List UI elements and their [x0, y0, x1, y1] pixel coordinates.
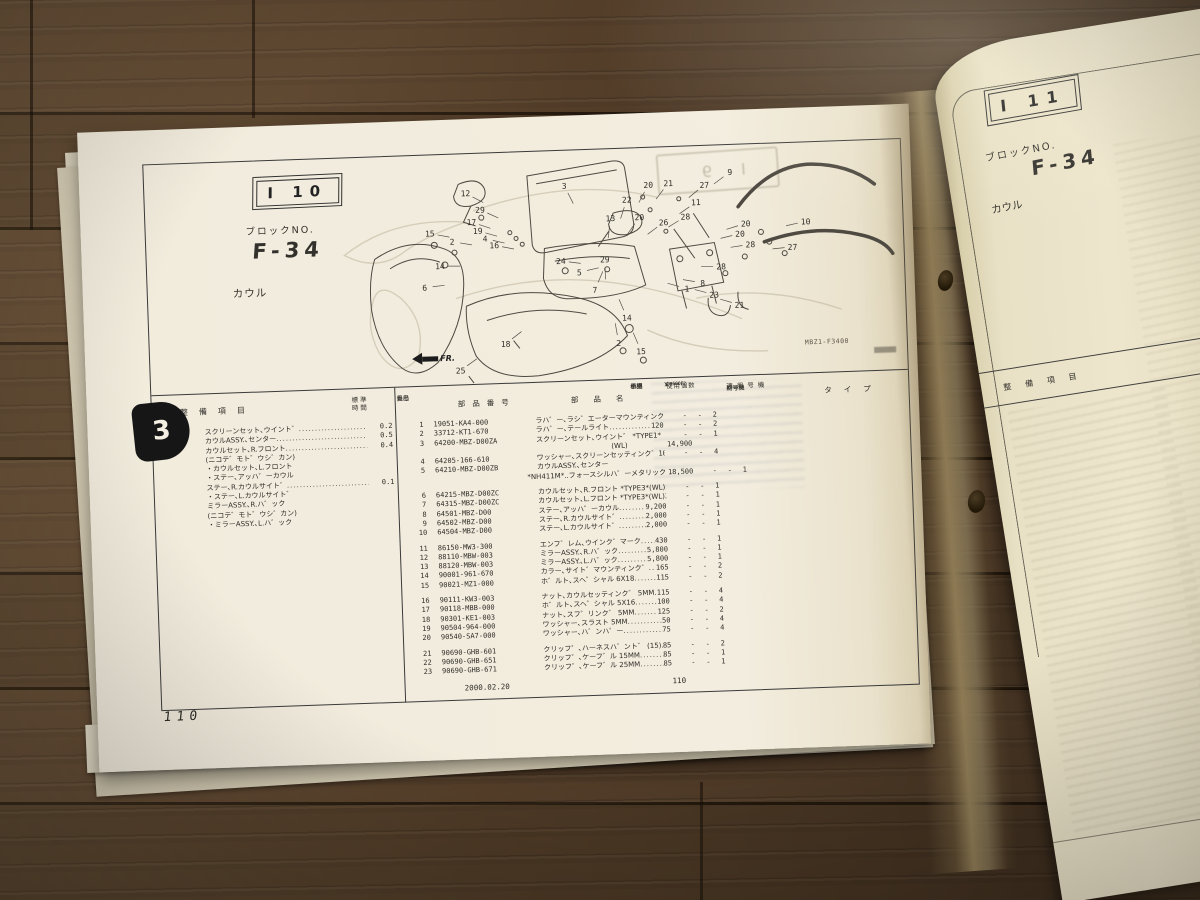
qty-cell: - [696, 519, 711, 529]
last-serial-header: 終号機 [726, 383, 744, 393]
retail-price: 23,400 [665, 493, 667, 502]
callout-number: 13 [605, 214, 615, 223]
qty-cell: 1 [711, 519, 726, 529]
type-header: タイプ [810, 382, 896, 396]
standard-time-value: 0.4 [367, 440, 393, 450]
callout-leader-line [512, 332, 522, 339]
qty-cell: - [693, 429, 708, 439]
callout-number: 27 [699, 181, 709, 190]
retail-price: 165 [656, 564, 669, 574]
callout-number: 2 [616, 339, 621, 348]
retail-price: 115 [656, 573, 669, 583]
qty-cell: 1 [710, 491, 725, 501]
callout-leader-line [487, 213, 498, 219]
callout-leader-line [720, 299, 732, 303]
standard-time-header: 標準 時間 [351, 396, 369, 413]
qty-cell: 4 [714, 614, 729, 624]
qty-cell: 1 [710, 481, 725, 491]
qty-cell: - [683, 572, 698, 582]
callout-leader-line [656, 189, 664, 199]
qty-cell: 2 [715, 639, 730, 649]
part-name: ステー､L.カウルサイト゛ [539, 522, 619, 534]
callout-number: 20 [643, 181, 653, 190]
ref-number-cell: 15 [401, 581, 429, 591]
retail-price: 2,000 [646, 521, 667, 531]
price-header-line3: 価格 [630, 383, 643, 390]
callout-number: 23 [709, 290, 719, 299]
part-name: クリッフ゜､ケーフ゛ル 25MM [544, 661, 641, 674]
callout-number: 28 [745, 240, 755, 249]
callout-number: 3 [562, 182, 567, 191]
callout-number: 10 [801, 217, 811, 226]
dotted-leader: ........................................… [641, 536, 656, 546]
quantity-used-header: 使用個数 CB600F CB600F2 X Y Y [666, 379, 724, 381]
retail-price-header: 希望 小売 価格 [630, 382, 662, 383]
wood-plank-seam [252, 0, 255, 118]
callout-number: 24 [556, 257, 566, 266]
qty-model-2: CB600F2 [666, 382, 686, 388]
retail-price: 18,500 [668, 467, 694, 477]
callout-number: 7 [592, 286, 597, 295]
wood-plank-seam [700, 782, 703, 900]
callout-leader-line [620, 207, 624, 218]
callout-leader-line [668, 221, 679, 227]
callout-number: 5 [577, 268, 582, 277]
qty-cell: - [722, 466, 737, 476]
callout-number: 20 [741, 219, 751, 228]
arrow-icon [412, 353, 422, 365]
callout-number: 2 [450, 238, 455, 247]
retail-price: 85 [663, 650, 672, 660]
callout-number: 21 [735, 301, 745, 310]
qty-cell: - [700, 649, 715, 659]
callout-number: 8 [700, 279, 705, 288]
parts-rows: 119051-KA4-000ラハ゛ー､ラシ゛エーターマウンティンク゛......… [395, 404, 918, 678]
callout-leader-line [786, 223, 798, 226]
callout-leader-line [473, 197, 484, 203]
fr-label: FR. [440, 353, 455, 363]
callout-leader-line [668, 283, 680, 287]
arrow-icon [422, 356, 438, 362]
qty-cell: - [685, 640, 700, 650]
qty-cell: - [682, 535, 697, 545]
callout-leader-line [714, 177, 724, 184]
photo-of-parts-catalog: I 10 ブロックNO. F-34 カウル I 9 [0, 0, 1200, 900]
callout-number: 27 [788, 243, 798, 252]
callout-number: 12 [460, 189, 470, 198]
qty-cell: 2 [713, 571, 728, 581]
standard-time-header-line2: 時間 [352, 404, 369, 413]
qty-cell: - [682, 544, 697, 554]
qty-cell: - [684, 615, 699, 625]
callout-number: 18 [501, 340, 511, 349]
callout-leader-line [448, 266, 460, 267]
qty-cell: 4 [715, 623, 730, 633]
qty-cell: 4 [708, 448, 723, 458]
qty-cell: 1 [711, 534, 726, 544]
front-direction-arrow: FR. [412, 352, 455, 365]
callout-number: 6 [422, 284, 427, 293]
callout-leader-line [502, 246, 514, 249]
dotted-leader: ........................................… [640, 660, 664, 670]
qty-cell: - [697, 553, 712, 563]
ref-number-cell [397, 477, 425, 487]
dotted-leader: ........................................… [634, 574, 656, 584]
issue-date: 2000.02.20 [465, 682, 510, 693]
qty-cell: - [697, 544, 712, 554]
part-name-header: 部品名 [543, 391, 667, 406]
callout-leader-line [438, 235, 450, 238]
callout-leader-line [731, 245, 743, 247]
qty-cell: - [699, 605, 714, 615]
qty-cell: - [678, 449, 693, 459]
callout-number: 9 [727, 168, 732, 177]
qty-cell: 1 [711, 509, 726, 519]
callout-leader-line [433, 285, 445, 286]
qty-cell: - [678, 430, 693, 440]
maintenance-items-header: 整備項目 [180, 405, 256, 419]
retail-price: 125 [657, 607, 670, 617]
part-name: ワッシャー､ハ゛ンハ゜ー [543, 627, 624, 639]
retail-price: 100 [658, 450, 665, 460]
parts-pane: 見出 番号 部品番号 部品名 希望 小売 価格 使用個数 [394, 370, 919, 703]
block-no-label: ブロックNO. [245, 221, 315, 237]
callout-number: 1 [684, 284, 689, 293]
callout-leader-line [619, 299, 624, 310]
ref-number-cell: 23 [404, 668, 432, 678]
section-tab-label: I 11 [999, 85, 1066, 115]
callout-number: 15 [636, 347, 646, 356]
ref-number-cell: 20 [403, 634, 431, 644]
part-name: ホ゛ルト､スヘ゜シャル 6X18 [541, 574, 635, 587]
callout-number: 25 [456, 366, 466, 375]
page-frame: I 10 ブロックNO. F-34 カウル I 9 [142, 138, 920, 711]
left-page: I 10 ブロックNO. F-34 カウル I 9 [77, 104, 931, 773]
retail-price: 23,400 [665, 483, 666, 492]
callout-number: 28 [680, 212, 690, 221]
qty-cell: 2 [712, 562, 727, 572]
maintenance-items-header: 整備項目 [1003, 369, 1092, 394]
callout-number: 22 [622, 195, 632, 204]
part-number-header: 部品番号 [435, 396, 539, 411]
callout-number: 14 [622, 313, 632, 322]
qty-cell: - [695, 501, 710, 511]
callout-leader-line [633, 333, 638, 344]
category-label: カウル [233, 285, 268, 301]
standard-time-value: 0.1 [368, 478, 394, 488]
qty-cell: - [700, 624, 715, 634]
dotted-leader: ........................................… [623, 626, 662, 637]
callout-leader-line [568, 193, 573, 204]
callout-leader-line [695, 289, 707, 293]
callout-leader-line [467, 359, 477, 366]
qty-cell: 2 [707, 410, 722, 420]
callout-number: 20 [735, 229, 745, 238]
wood-plank-seam [30, 0, 33, 230]
qty-mark-3: Y [664, 382, 668, 388]
retail-price: 120 [651, 422, 664, 432]
qty-cell: - [681, 510, 696, 520]
maintenance-rows: スクリーンセット､ウイント゛..........................… [153, 422, 396, 533]
ref-number-header: 見出 番号 [396, 395, 430, 396]
callout-number: 11 [691, 198, 701, 207]
callout-number: 4 [482, 234, 487, 243]
callout-leader-line [647, 227, 657, 234]
ref-number-cell: 10 [399, 529, 427, 539]
qty-cell: - [701, 658, 716, 668]
qty-cell: - [685, 625, 700, 635]
retail-price: 75 [662, 626, 671, 636]
qty-cell: - [693, 448, 708, 458]
qty-cell: - [684, 606, 699, 616]
callout-leader-line [569, 261, 581, 263]
ref-header-line2: 番号 [396, 395, 409, 403]
retail-price: 85 [663, 641, 672, 651]
qty-cell: 1 [716, 657, 731, 667]
callout-leader-line [587, 268, 599, 271]
callout-leader-line [615, 323, 617, 335]
callout-leader-line [683, 279, 695, 282]
retail-price: 100 [657, 598, 670, 608]
retail-price: 50 [662, 616, 671, 626]
qty-cell: 2 [714, 605, 729, 615]
callout-number: 29 [600, 255, 610, 264]
callout-leader-line [460, 243, 472, 246]
qty-cell: - [681, 520, 696, 530]
maintenance-pane: 整備項目 標準 時間 スクリーンセット､ウイント゛...............… [151, 388, 405, 711]
callout-leader-line [720, 236, 732, 239]
thumb-index-number: 3 [151, 415, 172, 447]
page-number: 110 [163, 709, 203, 725]
qty-cell: - [680, 492, 695, 502]
qty-cell: - [682, 563, 697, 573]
qty-cell: 1 [708, 429, 723, 439]
qty-cell: 1 [737, 465, 752, 475]
callout-number: 21 [663, 179, 673, 188]
callout-number: 14 [435, 262, 445, 271]
callout-number: 29 [475, 206, 485, 215]
qty-cell: - [695, 491, 710, 501]
callout-number: 19 [473, 227, 483, 236]
dotted-leader: ........................................… [619, 521, 647, 531]
qty-cell: - [693, 420, 708, 430]
qty-cell: - [680, 482, 695, 492]
retail-price: 85 [663, 659, 672, 669]
footer-page-number: 110 [672, 676, 686, 685]
applied-serial-header: 適用号機 初号機 終号機 [726, 377, 804, 380]
callout-leader-line [689, 190, 699, 198]
retail-price: 115 [657, 588, 670, 598]
qty-cell: 4 [713, 586, 728, 596]
qty-cell: - [698, 572, 713, 582]
callout-number: 16 [489, 241, 499, 250]
maintenance-item-name: ・ミラーASSY.､L.ハ゛ック [208, 518, 293, 530]
callout-number: 28 [716, 262, 726, 271]
qty-cell: - [699, 596, 714, 606]
callout-leader-line [701, 266, 713, 267]
qty-cell: - [707, 466, 722, 476]
exploded-parts-diagram: 1229171941631322202021279112628202010272… [311, 141, 906, 394]
retail-price: 430 [655, 536, 668, 546]
callout-number: 20 [634, 213, 644, 222]
qty-cell: - [677, 411, 692, 421]
callout-number: 17 [466, 218, 476, 227]
qty-cell: - [683, 587, 698, 597]
callout-number: 26 [659, 218, 669, 227]
diagram-code: MBZ1-F3400 [805, 337, 849, 347]
callout-number: 15 [425, 229, 435, 238]
callout-leader-line [773, 248, 785, 249]
parts-table-area: 整備項目 標準 時間 スクリーンセット､ウイント゛...............… [151, 369, 919, 711]
qty-cell: - [686, 658, 701, 668]
